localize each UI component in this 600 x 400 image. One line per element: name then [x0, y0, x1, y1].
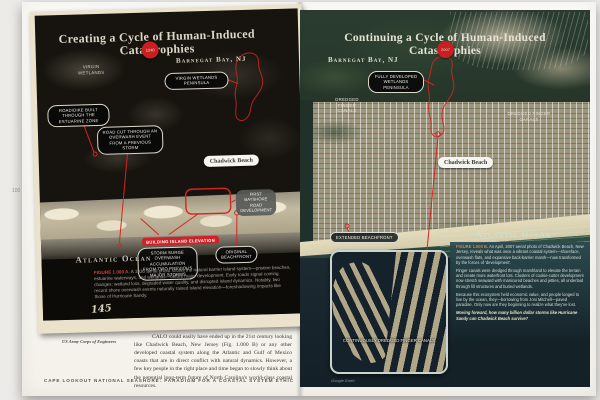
- finger-canals-inset-photo: Continuously dredged finger canals: [330, 250, 448, 374]
- right-figure-caption-label: FIGURE 1.000 B.: [456, 244, 488, 249]
- page-number: 100: [12, 188, 20, 194]
- chadwick-beach-label-right: Chadwick Beach: [438, 157, 493, 168]
- dredged-canals-label-left: Dredged finger canals: [330, 97, 364, 114]
- virgin-wetlands-peninsula-label: Virgin Wetlands Peninsula: [164, 71, 228, 90]
- right-caption-paragraph: FIGURE 1.000 B. An April, 2007 aerial ph…: [456, 244, 584, 265]
- right-satellite-photo: Continuing a Cycle of Human-Induced Cata…: [300, 10, 590, 387]
- photo-handwritten-number: 145: [90, 303, 112, 316]
- fully-developed-label: Fully developed wetlands peninsula: [368, 71, 424, 93]
- road-cut-label: Road cut through an overwash event from …: [97, 125, 164, 155]
- right-photo-credit: Google Earth: [331, 378, 355, 383]
- first-bayshore-label: First bayshore road development: [236, 189, 277, 216]
- right-figure-caption: FIGURE 1.000 B. An April, 2007 aerial ph…: [456, 244, 584, 324]
- extended-beachfront-label: Extended beachfront: [330, 232, 399, 243]
- dredged-canals-label-right: Dredged finger canals: [498, 111, 560, 122]
- inset-texture-canals-right: [383, 250, 448, 374]
- atlantic-ocean-label-left: Atlantic Ocean: [75, 253, 151, 265]
- chadwick-beach-label-left: Chadwick Beach: [204, 155, 259, 168]
- original-beachfront-label: Original beachfront: [215, 246, 257, 264]
- right-caption-paragraph: Finger canals were dredged through marsh…: [456, 268, 584, 289]
- book-spread: Creating a Cycle of Human-Induced Catast…: [22, 2, 596, 396]
- right-location-label: Barnegat Bay, NJ: [328, 56, 399, 64]
- left-photo-credit: US Army Corps of Engineers: [62, 339, 116, 344]
- left-photo-image: Creating a Cycle of Human-Induced Catast…: [35, 8, 306, 320]
- virgin-wetlands-label: Virgin Wetlands: [74, 64, 108, 76]
- road-dike-label: Road/Dike built through the estuarine zo…: [47, 104, 110, 128]
- left-figure-caption: FIGURE 1.000 A. A 1930 aerial photo show…: [94, 265, 293, 301]
- running-footer: Cape Lookout National Seashore: Paradigm…: [44, 378, 294, 383]
- left-historic-photo: Creating a Cycle of Human-Induced Catast…: [30, 4, 311, 333]
- right-caption-question: Moving forward, how many billion dollar …: [456, 310, 584, 321]
- right-year-badge: 2007: [437, 41, 454, 58]
- left-figure-caption-label: FIGURE 1.000 A.: [94, 269, 130, 275]
- satellite-texture-bay-strip: [300, 100, 313, 256]
- atlantic-ocean-label-right: Atlantic Ocean: [476, 230, 551, 239]
- continuously-dredged-label: Continuously dredged finger canals: [332, 338, 446, 344]
- right-caption-paragraph: Because this ecosystem held economic val…: [456, 292, 584, 308]
